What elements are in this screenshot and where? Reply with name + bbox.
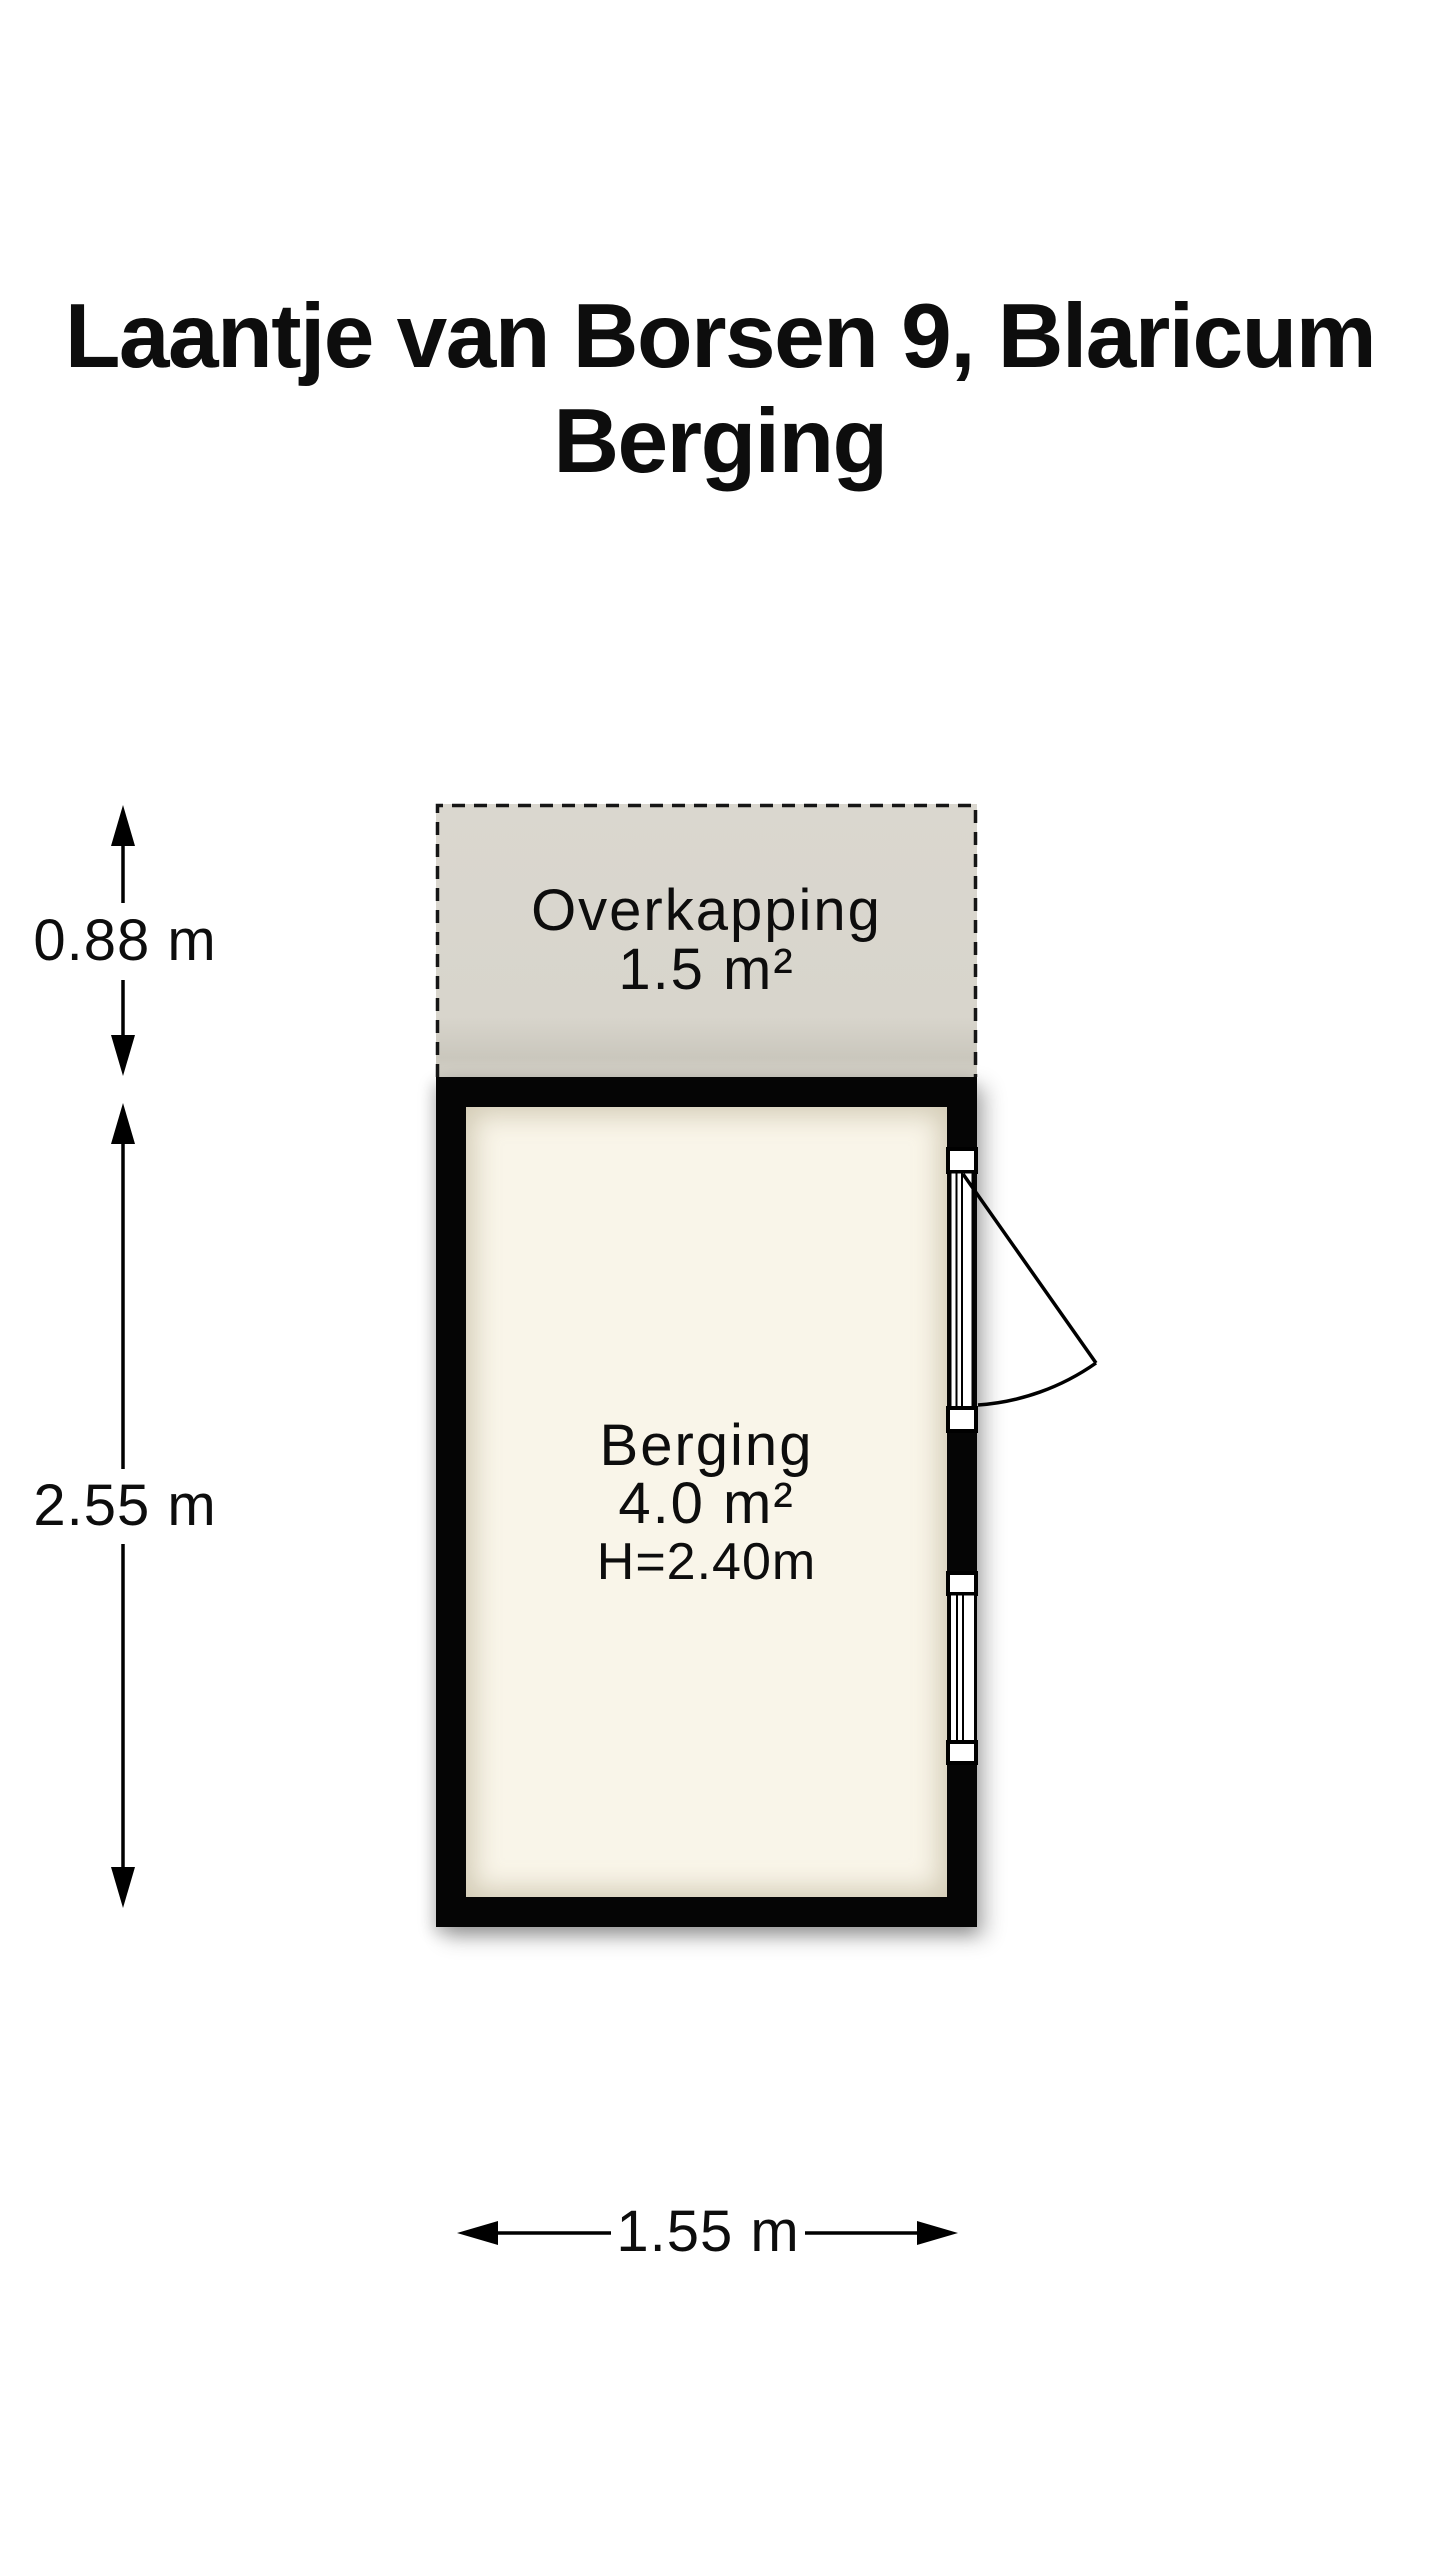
window-frame-top xyxy=(948,1573,976,1594)
dimension-arrow-room-depth xyxy=(111,1103,135,1908)
dimension-arrow-width xyxy=(457,2221,958,2245)
arrow-up-icon xyxy=(111,1103,135,1144)
door xyxy=(948,1149,1096,1431)
door-swing-arc xyxy=(978,1363,1096,1405)
plan-linework xyxy=(0,0,1440,2560)
floorplan-page: Laantje van Borsen 9, Blaricum Berging O… xyxy=(0,0,1440,2560)
door-leaf xyxy=(963,1174,1096,1363)
door-frame-top xyxy=(948,1149,976,1172)
overkapping-dashed-border xyxy=(438,806,976,1078)
dimension-arrow-overkapping-depth xyxy=(111,805,135,1076)
arrow-left-icon xyxy=(457,2221,498,2245)
door-frame-bottom xyxy=(948,1408,976,1431)
arrow-up-icon xyxy=(111,805,135,846)
arrow-right-icon xyxy=(917,2221,958,2245)
window-frame-bottom xyxy=(948,1742,976,1763)
arrow-down-icon xyxy=(111,1867,135,1908)
window xyxy=(948,1573,976,1763)
arrow-down-icon xyxy=(111,1035,135,1076)
